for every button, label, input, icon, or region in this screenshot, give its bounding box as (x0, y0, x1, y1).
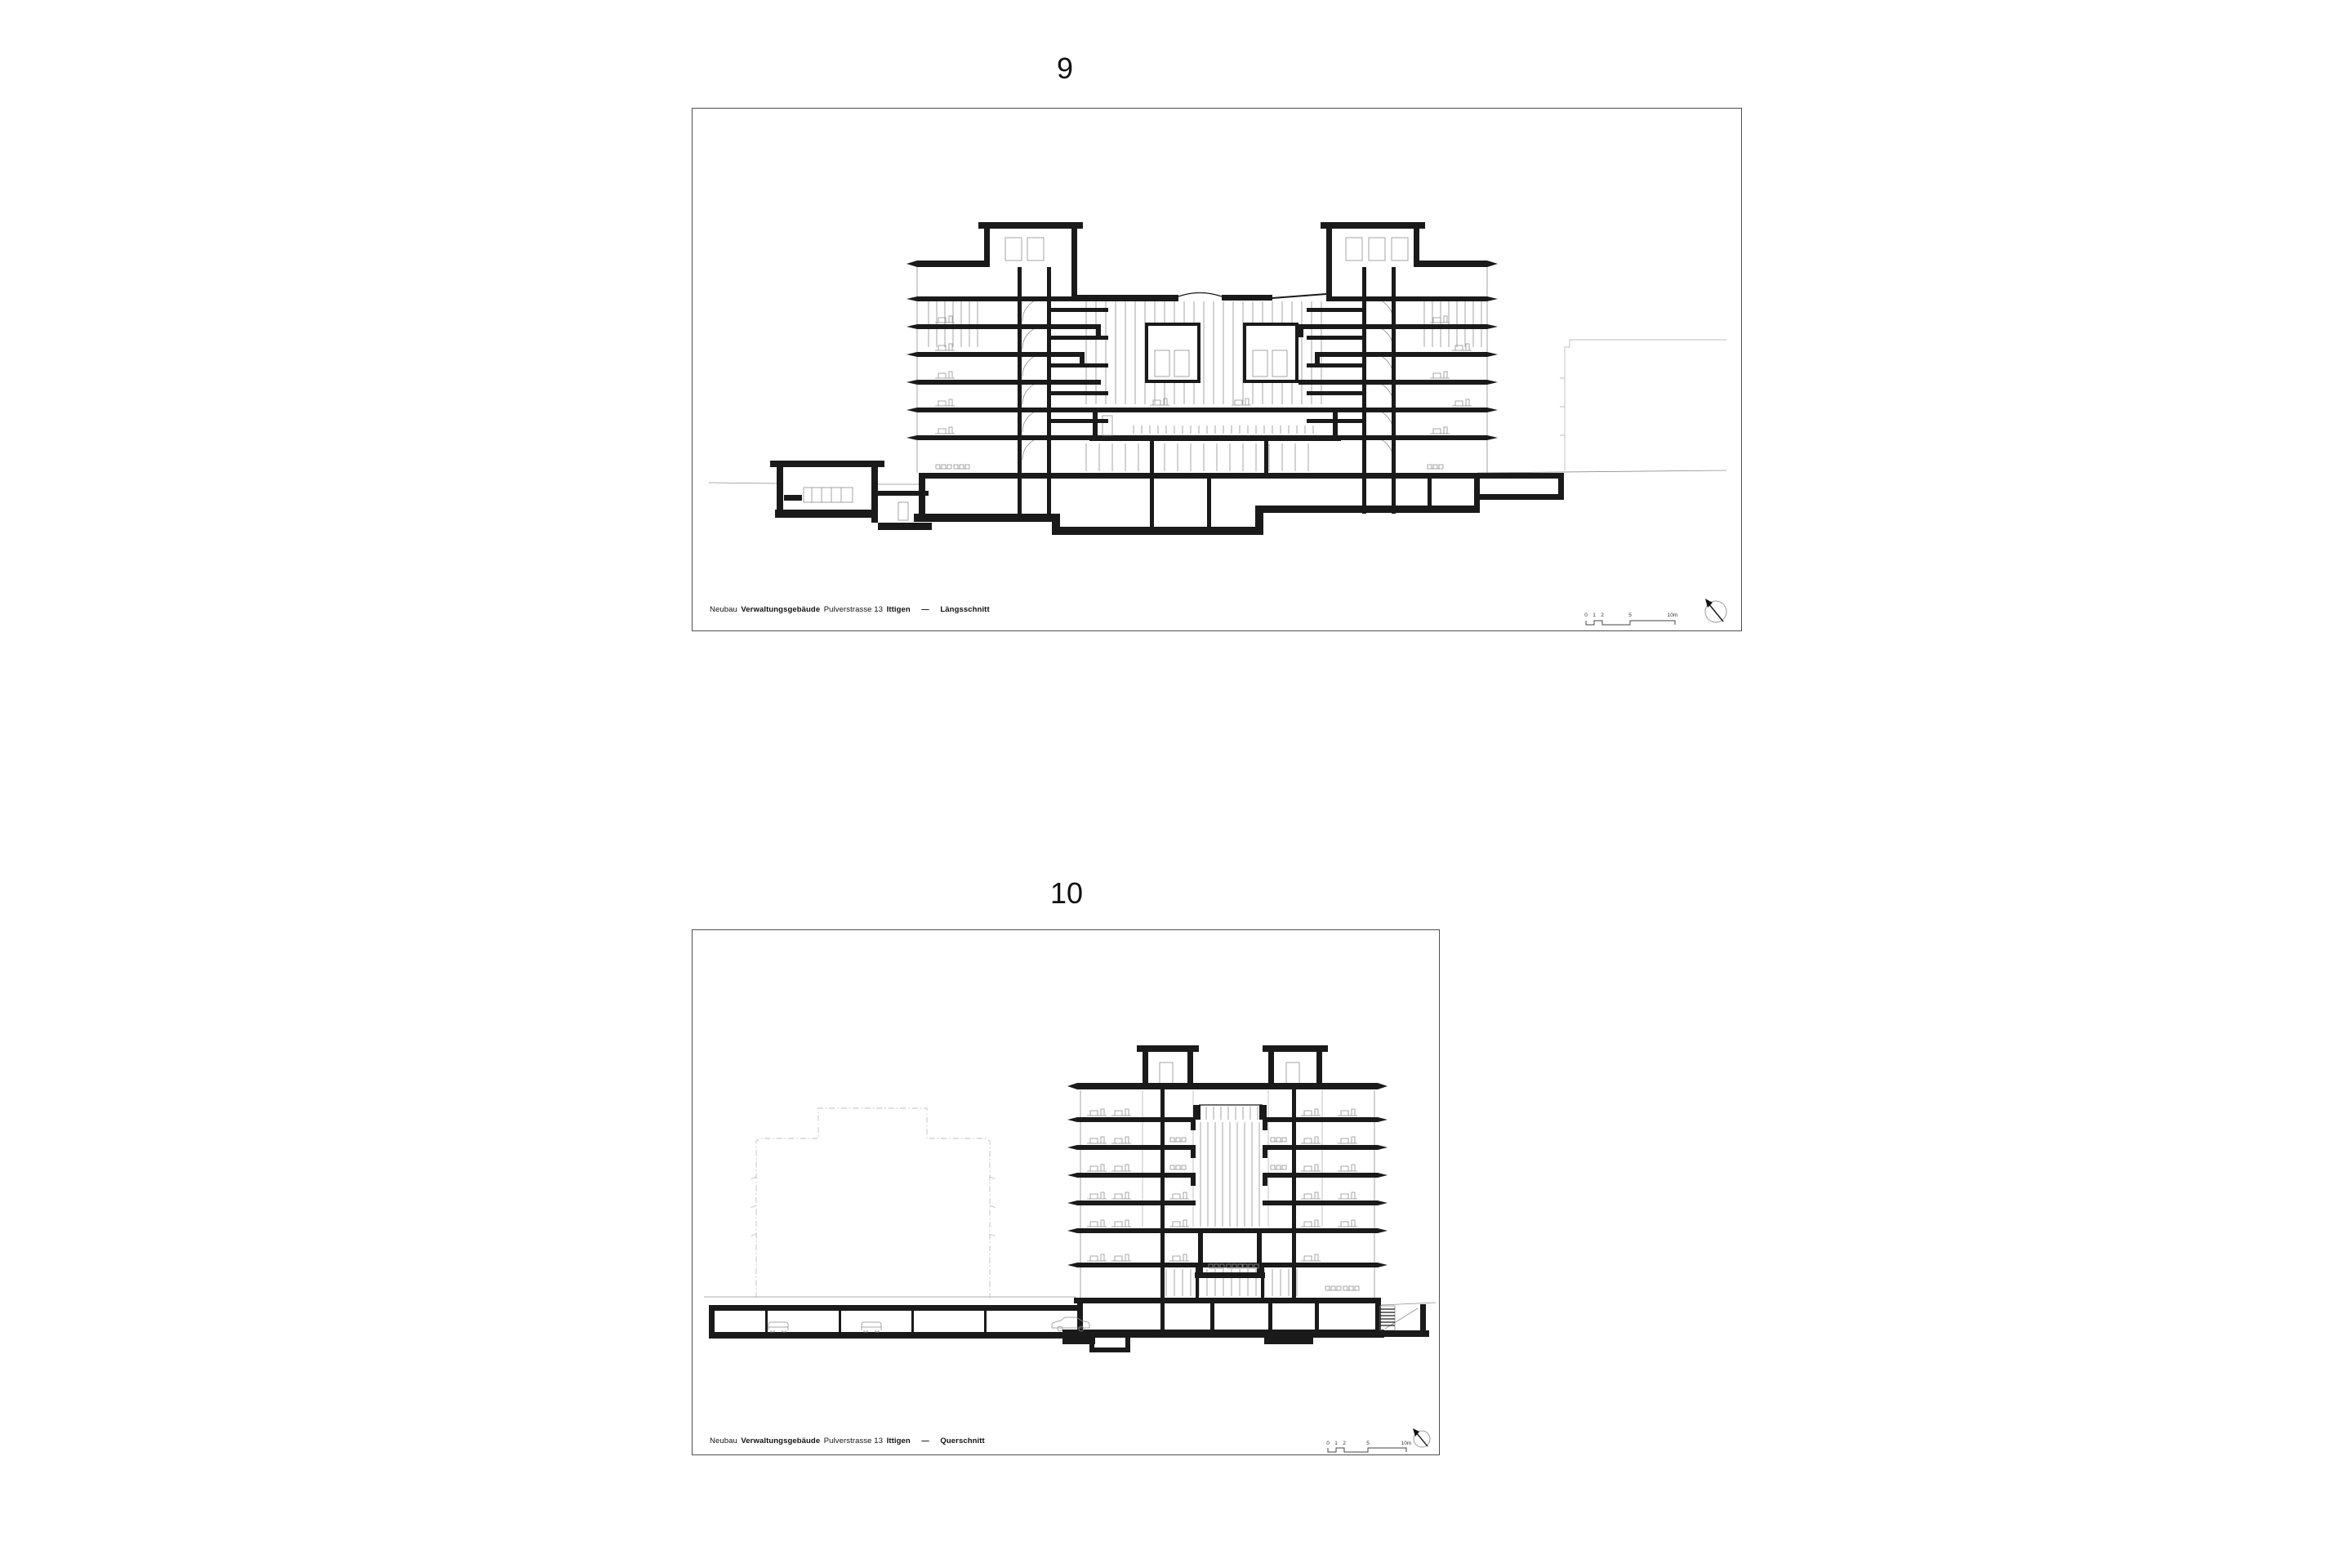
figure-10-frame: 0 1 2 5 10m Neubau Verwaltungsgebäude Pu… (692, 929, 1440, 1455)
figure-10-number: 10 (1050, 879, 1083, 908)
svg-text:0: 0 (1326, 1441, 1330, 1446)
svg-text:10m: 10m (1401, 1441, 1412, 1446)
caption-city: Ittigen (887, 1437, 911, 1445)
caption-project: Neubau (710, 605, 737, 614)
adjacent-building-outline (751, 1108, 996, 1298)
svg-text:10m: 10m (1668, 612, 1678, 618)
long-section-drawing: 0 1 2 5 10m (693, 109, 1740, 630)
north-arrow-icon (1413, 1428, 1430, 1447)
svg-text:2: 2 (1343, 1441, 1346, 1446)
building-structure (1067, 1045, 1388, 1298)
caption-address: Pulverstrasse 13 (824, 1437, 883, 1445)
caption-building: Verwaltungsgebäude (741, 1437, 820, 1445)
svg-text:1: 1 (1334, 1441, 1338, 1446)
glazing-and-furniture (1080, 1062, 1374, 1298)
svg-text:1: 1 (1592, 612, 1596, 618)
svg-text:0: 0 (1584, 612, 1588, 618)
caption-building: Verwaltungsgebäude (741, 605, 820, 614)
caption-view-title: Längsschnitt (940, 605, 989, 614)
svg-text:2: 2 (1601, 612, 1604, 618)
basement-structure (709, 1298, 1429, 1352)
adjacent-building-outline (1560, 340, 1726, 470)
caption-address: Pulverstrasse 13 (824, 605, 883, 614)
basement-structure (770, 461, 1564, 535)
scale-bar: 0 1 2 5 10m (1584, 612, 1677, 625)
drawing-caption: Neubau Verwaltungsgebäude Pulverstrasse … (710, 605, 990, 614)
caption-view-title: Querschnitt (940, 1437, 984, 1445)
caption-project: Neubau (710, 1437, 737, 1445)
building-structure (906, 222, 1498, 473)
caption-city: Ittigen (887, 605, 911, 614)
caption-separator: — (921, 605, 929, 614)
caption-separator: — (921, 1437, 929, 1445)
figure-9-number: 9 (1057, 54, 1073, 83)
scale-bar: 0 1 2 5 10m (1326, 1441, 1411, 1452)
north-arrow-icon (1705, 599, 1726, 622)
svg-text:5: 5 (1628, 612, 1632, 618)
cross-section-drawing: 0 1 2 5 10m (693, 930, 1438, 1454)
drawing-caption: Neubau Verwaltungsgebäude Pulverstrasse … (710, 1437, 985, 1445)
svg-text:5: 5 (1366, 1441, 1370, 1446)
figure-9-frame: 0 1 2 5 10m Neubau Verwaltungsgebäude Pu… (692, 108, 1742, 631)
